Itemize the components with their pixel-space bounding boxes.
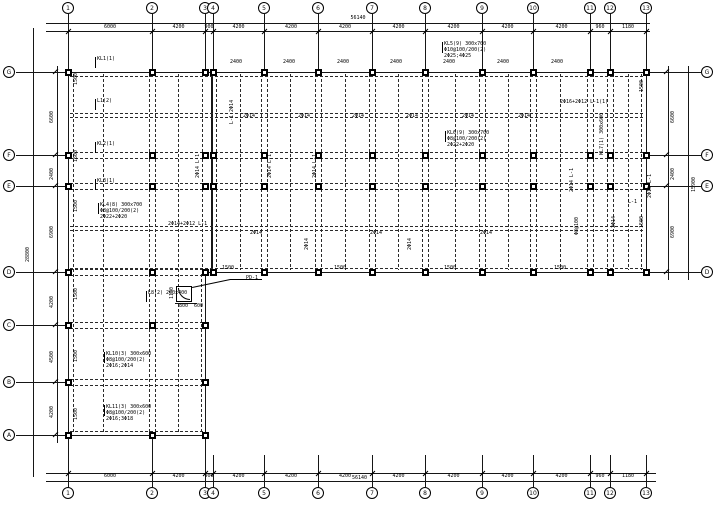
grid-bubble-11: 11: [584, 487, 596, 499]
grid-bubble-7: 7: [366, 2, 378, 14]
grid-bubble-9: 9: [476, 2, 488, 14]
beam-line: [178, 74, 179, 433]
dimension-text: 4500: [50, 350, 56, 362]
dimension-text: 4200: [447, 25, 459, 31]
column-square: [369, 269, 376, 276]
annotation-text: 2Φ16;2Φ14: [106, 364, 133, 370]
annotation-leader: [445, 131, 446, 142]
grid-axis-line: [16, 186, 68, 187]
grid-axis-line: [205, 14, 206, 72]
annotation-leader: [104, 405, 105, 416]
annotation-leader: [95, 99, 96, 110]
dimension-text: 4200: [232, 474, 244, 480]
dimension-text: 6000: [104, 25, 116, 31]
column-square: [530, 69, 537, 76]
column-square: [202, 69, 209, 76]
grid-axis-line: [152, 435, 153, 487]
column-square: [202, 152, 209, 159]
grid-axis-line: [16, 435, 68, 436]
column-square: [422, 269, 429, 276]
column-square: [643, 152, 650, 159]
column-square: [530, 152, 537, 159]
grid-bubble-4: 4: [207, 2, 219, 14]
beam-line: [530, 74, 531, 270]
beam-line: [202, 74, 203, 270]
column-square: [369, 69, 376, 76]
grid-bubble-5: 5: [258, 2, 270, 14]
beam-line: [369, 74, 370, 270]
beam-line: [149, 74, 150, 433]
grid-bubble-F: F: [3, 149, 15, 161]
beam-line: [103, 74, 104, 433]
column-square: [479, 183, 486, 190]
column-square: [530, 183, 537, 190]
column-square: [422, 69, 429, 76]
dimension-line: [57, 66, 58, 443]
beam-line: [290, 74, 291, 270]
column-square: [261, 269, 268, 276]
dimension-text: 2400: [50, 167, 56, 179]
annotation-text: L-1: [628, 200, 637, 206]
beam-line: [422, 74, 423, 270]
dimension-text: 4200: [285, 474, 297, 480]
annotation-leader: [146, 291, 147, 302]
dimension-text: 1180: [622, 474, 634, 480]
grid-bubble-9: 9: [476, 487, 488, 499]
grid-bubble-13: 13: [640, 487, 652, 499]
column-square: [587, 69, 594, 76]
column-square: [479, 152, 486, 159]
annotation-leader: [95, 142, 96, 153]
dimension-text: 4200: [392, 25, 404, 31]
beam-line: [70, 328, 203, 329]
grid-axis-line: [646, 14, 647, 72]
beam-line: [70, 322, 203, 323]
annotation-text: 1500: [640, 216, 646, 228]
building-outline: [68, 435, 205, 436]
column-square: [607, 183, 614, 190]
grid-bubble-E: E: [3, 180, 15, 192]
annotation-text: 1500: [334, 266, 346, 272]
dimension-text: 4200: [339, 474, 351, 480]
grid-bubble-C: C: [3, 319, 15, 331]
column-square: [210, 152, 217, 159]
annotation-text: 2Φ16+2Φ12 L-1(1): [560, 100, 608, 106]
beam-line: [398, 74, 399, 270]
grid-axis-line: [425, 14, 426, 72]
annotation-text: 2Φ14 L-1: [570, 168, 576, 192]
annotation-text: 2400: [443, 60, 455, 66]
beam-line: [70, 431, 203, 432]
beam-line: [508, 74, 509, 270]
dimension-text: 4200: [447, 474, 459, 480]
column-square: [149, 269, 156, 276]
grid-bubble-G: G: [3, 66, 15, 78]
column-square: [210, 269, 217, 276]
dimension-text: 4200: [172, 474, 184, 480]
annotation-text: 2Φ14: [518, 114, 530, 120]
annotation-text: 2Φ14: [243, 114, 255, 120]
grid-axis-line: [646, 72, 701, 73]
column-square: [149, 69, 156, 76]
annotation-text: 1500: [74, 200, 80, 212]
annotation-text: 1500: [74, 150, 80, 162]
column-square: [149, 432, 156, 439]
dimension-text: 6000: [104, 474, 116, 480]
dimension-text: 6600: [50, 110, 56, 122]
annotation-text: 2Φ14: [408, 238, 414, 250]
column-square: [261, 69, 268, 76]
grid-axis-line: [68, 435, 69, 487]
beam-line: [628, 74, 629, 270]
dimension-text: 4200: [172, 25, 184, 31]
column-square: [202, 379, 209, 386]
annotation-text: 2Φ22+2Φ20: [447, 143, 474, 149]
annotation-text: 1150: [170, 287, 176, 299]
beam-line: [70, 189, 644, 190]
grid-bubble-7: 7: [366, 487, 378, 499]
building-outline: [646, 72, 647, 272]
annotation-text: 2400: [337, 60, 349, 66]
annotation-text: 2Φ16 L-1: [648, 174, 654, 198]
dimension-text: 6600: [671, 110, 677, 122]
annotation-text: Φ8@100: [575, 217, 581, 235]
overall-dim-left: 28800: [25, 247, 31, 262]
grid-bubble-13: 13: [640, 2, 652, 14]
beam-line: [428, 74, 429, 270]
grid-bubble-D: D: [3, 266, 15, 278]
dimension-line: [46, 481, 656, 482]
column-square: [643, 269, 650, 276]
annotation-leader: [95, 57, 96, 68]
annotation-text: 1500: [74, 288, 80, 300]
grid-bubble-5: 5: [258, 487, 270, 499]
annotation-text: L8(2) 200x400: [148, 291, 187, 297]
beam-line: [70, 379, 203, 380]
annotation-leader: [442, 42, 443, 53]
annotation-text: 1500: [222, 266, 234, 272]
column-square: [210, 183, 217, 190]
beam-line: [261, 74, 262, 270]
beam-line: [216, 74, 217, 270]
annotation-text: KL7(1) 300x600: [600, 113, 606, 155]
annotation-text: 2Φ14: [370, 231, 382, 237]
beam-line: [70, 230, 644, 231]
column-square: [607, 152, 614, 159]
annotation-text: 600: [194, 304, 203, 310]
grid-axis-line: [213, 14, 214, 72]
annotation-text: 1500: [74, 73, 80, 85]
dimension-text: 4200: [50, 405, 56, 417]
beam-line: [73, 74, 74, 433]
column-square: [587, 152, 594, 159]
annotation-text: KL2(1): [97, 142, 115, 148]
grid-bubble-10: 10: [527, 2, 539, 14]
column-square: [479, 269, 486, 276]
grid-axis-line: [152, 14, 153, 72]
dimension-text: 4200: [555, 474, 567, 480]
annotation-text: L1(2): [97, 99, 112, 105]
grid-bubble-11: 11: [584, 2, 596, 14]
dimension-text: 2400: [671, 167, 677, 179]
column-square: [65, 379, 72, 386]
annotation-text: 2Φ14 L-1: [196, 154, 202, 178]
annotation-leader: [98, 203, 99, 214]
dimension-text: 900: [204, 474, 213, 480]
annotation-text: 2Φ14 L-1: [268, 154, 274, 178]
beam-line: [70, 152, 644, 153]
beam-line: [321, 74, 322, 270]
annotation-text: 1500: [554, 266, 566, 272]
annotation-text: PD-1: [246, 276, 258, 282]
dimension-line: [688, 66, 689, 280]
grid-axis-line: [372, 14, 373, 72]
beam-line: [613, 74, 614, 270]
beam-line: [455, 74, 456, 270]
grid-bubble-6: 6: [312, 487, 324, 499]
annotation-leader: [95, 179, 96, 190]
annotation-text: 2Φ14 L-1: [313, 154, 319, 178]
annotation-text: 800: [179, 304, 188, 310]
beam-line: [345, 74, 346, 270]
column-square: [315, 69, 322, 76]
grid-axis-line: [16, 382, 68, 383]
beam-line: [155, 74, 156, 433]
beam-line: [70, 385, 203, 386]
annotation-text: 1500: [74, 408, 80, 420]
column-square: [65, 69, 72, 76]
column-square: [65, 152, 72, 159]
column-square: [607, 69, 614, 76]
annotation-text: 2400: [497, 60, 509, 66]
grid-axis-line: [646, 272, 701, 273]
column-square: [202, 322, 209, 329]
column-square: [202, 432, 209, 439]
beam-line: [70, 158, 644, 159]
column-square: [422, 183, 429, 190]
overall-dim-right: 15900: [691, 177, 697, 192]
beam-line: [641, 74, 642, 270]
leader-line: [192, 279, 230, 288]
grid-bubble-2: 2: [146, 487, 158, 499]
grid-bubble-E: E: [701, 180, 713, 192]
grid-axis-line: [16, 325, 68, 326]
grid-bubble-12: 12: [604, 2, 616, 14]
column-square: [202, 183, 209, 190]
annotation-text: 2400: [230, 60, 242, 66]
grid-axis-line: [533, 14, 534, 72]
beam-line: [70, 226, 644, 227]
annotation-text: 2Φ14: [305, 238, 311, 250]
grid-axis-line: [264, 14, 265, 72]
dimension-text: 4200: [501, 25, 513, 31]
annotation-text: KL3(1): [97, 179, 115, 185]
column-square: [65, 183, 72, 190]
column-square: [149, 183, 156, 190]
annotation-leader: [104, 352, 105, 363]
annotation-text: 2Φ14: [480, 231, 492, 237]
grid-axis-line: [16, 155, 68, 156]
dimension-text: 4200: [285, 25, 297, 31]
grid-axis-line: [590, 14, 591, 72]
annotation-text: L-1 2Φ14: [230, 100, 236, 124]
beam-line: [240, 74, 241, 270]
dimension-text: 960: [595, 25, 604, 31]
annotation-text: 2400: [551, 60, 563, 66]
dimension-text: 4200: [50, 295, 56, 307]
annotation-text: 2Φ14: [250, 231, 262, 237]
column-square: [149, 152, 156, 159]
dimension-text: 1180: [622, 25, 634, 31]
beam-line: [485, 74, 486, 270]
dimension-text: 4200: [339, 25, 351, 31]
column-square: [65, 269, 72, 276]
grid-bubble-4: 4: [207, 487, 219, 499]
annotation-text: 2400: [283, 60, 295, 66]
grid-bubble-8: 8: [419, 2, 431, 14]
column-square: [315, 269, 322, 276]
beam-line: [70, 269, 203, 270]
column-square: [530, 269, 537, 276]
grid-bubble-G: G: [701, 66, 713, 78]
annotation-text: 1500: [640, 80, 646, 92]
column-square: [587, 183, 594, 190]
beam-line: [201, 274, 202, 433]
dimension-text: 4200: [555, 25, 567, 31]
column-square: [479, 69, 486, 76]
column-square: [65, 322, 72, 329]
annotation-text: 2Φ14+2Φ12 L-1: [168, 222, 207, 228]
dimension-text: 4200: [232, 25, 244, 31]
annotation-text: 2400: [390, 60, 402, 66]
dimension-text: 4200: [501, 474, 513, 480]
annotation-text: 2Φ14: [298, 114, 310, 120]
column-square: [422, 152, 429, 159]
dimension-text: 960: [595, 474, 604, 480]
dimension-text: 6900: [671, 226, 677, 238]
column-square: [261, 183, 268, 190]
grid-axis-line: [646, 186, 701, 187]
grid-bubble-2: 2: [146, 2, 158, 14]
dimension-line: [46, 31, 650, 32]
dimension-text: 900: [204, 25, 213, 31]
grid-bubble-10: 10: [527, 487, 539, 499]
annotation-text: 1500: [74, 350, 80, 362]
beam-line: [70, 183, 644, 184]
grid-axis-line: [610, 14, 611, 72]
column-square: [315, 183, 322, 190]
grid-bubble-F: F: [701, 149, 713, 161]
grid-bubble-12: 12: [604, 487, 616, 499]
expansion-joint-line: [211, 72, 213, 272]
grid-axis-line: [16, 72, 68, 73]
dimension-line: [33, 28, 34, 477]
annotation-text: 2Φ14: [462, 114, 474, 120]
building-outline: [205, 272, 206, 435]
column-square: [643, 69, 650, 76]
column-square: [202, 269, 209, 276]
grid-axis-line: [16, 272, 68, 273]
column-square: [210, 69, 217, 76]
beam-line: [70, 275, 203, 276]
annotation-text: 2Φ22+2Φ20: [100, 215, 127, 221]
dimension-line: [668, 66, 669, 280]
annotation-text: 2Φ14: [406, 114, 418, 120]
column-square: [369, 152, 376, 159]
beam-line: [536, 74, 537, 270]
grid-axis-line: [646, 155, 701, 156]
grid-axis-line: [318, 14, 319, 72]
grid-bubble-D: D: [701, 266, 713, 278]
annotation-text: KL1(1): [97, 57, 115, 63]
annotation-text: 1500: [444, 266, 456, 272]
dimension-text: 6900: [50, 226, 56, 238]
grid-axis-line: [68, 14, 69, 72]
column-square: [149, 322, 156, 329]
annotation-text: 2Φ14: [612, 216, 618, 228]
column-square: [369, 183, 376, 190]
drawing-sheet: 56140 56140 28800 15900 1122334455667788…: [0, 0, 718, 508]
grid-bubble-1: 1: [62, 487, 74, 499]
beam-line: [375, 74, 376, 270]
grid-bubble-6: 6: [312, 2, 324, 14]
grid-bubble-1: 1: [62, 2, 74, 14]
annotation-text: 2Φ14: [352, 114, 364, 120]
beam-line: [479, 74, 480, 270]
column-square: [607, 269, 614, 276]
grid-bubble-B: B: [3, 376, 15, 388]
grid-bubble-A: A: [3, 429, 15, 441]
column-square: [65, 432, 72, 439]
beam-line: [70, 76, 644, 77]
grid-bubble-8: 8: [419, 487, 431, 499]
overall-dim-top: 56140: [350, 15, 365, 21]
column-square: [587, 269, 594, 276]
annotation-text: 2Φ16;3Φ18: [106, 417, 133, 423]
dimension-text: 4200: [392, 474, 404, 480]
